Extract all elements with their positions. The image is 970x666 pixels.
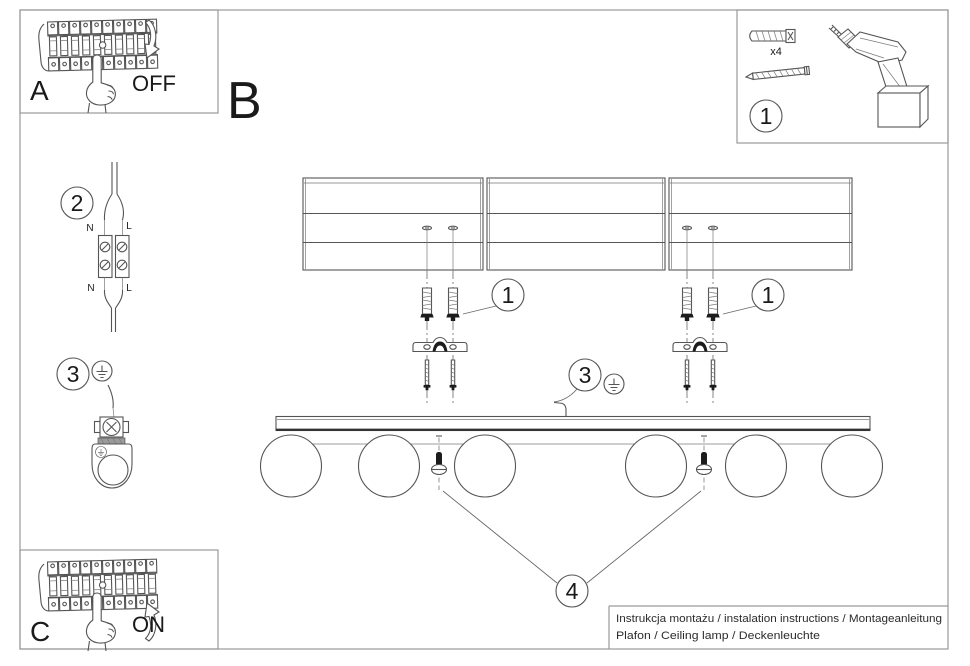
ceiling-hole <box>709 226 718 230</box>
earth-symbol-small-icon <box>96 447 107 458</box>
lamp-globe <box>626 435 687 497</box>
earth-symbol-icon <box>92 361 112 381</box>
step-c-label: C <box>30 616 50 647</box>
anchor-screw-assembly-right <box>673 230 727 404</box>
ground-bracket <box>92 438 132 488</box>
wall-plug-icon <box>750 30 795 43</box>
ceiling-panels <box>303 178 852 270</box>
label-neutral-top: N <box>86 223 93 234</box>
lamp-globe <box>455 435 516 497</box>
power-cable <box>554 403 566 417</box>
on-label: ON <box>132 612 165 637</box>
lamp-globe <box>359 435 420 497</box>
anchor-screw-assembly-left <box>413 230 467 404</box>
ground-callout: 3 <box>67 361 80 387</box>
ceiling-hole <box>423 226 432 230</box>
globe-screws-callout: 4 <box>566 578 579 604</box>
mains-wires-top <box>104 194 123 220</box>
wiring-diagram: 2 N L N L <box>61 162 132 332</box>
step-b-label: B <box>227 72 262 130</box>
earth-symbol-main-icon <box>604 374 624 394</box>
step-a-panel: A OFF <box>30 19 176 113</box>
anchor-quantity-label: x4 <box>770 46 782 58</box>
label-live-top: L <box>126 221 132 232</box>
page-frame <box>20 10 948 649</box>
lamp-globe <box>726 435 787 497</box>
ceiling-hole <box>683 226 692 230</box>
lamp-globe <box>261 435 322 497</box>
mains-cable-bottom <box>112 308 116 332</box>
screw-icon <box>746 66 810 81</box>
terminal-block <box>99 236 130 278</box>
part-1-callout: 1 <box>760 103 773 129</box>
footer-line-2: Plafon / Ceiling lamp / Deckenleuchte <box>616 630 820 642</box>
anchors-left-callout: 1 <box>502 282 515 308</box>
ground-main-callout: 3 <box>579 362 592 388</box>
mounting-diagram: 1 1 3 4 <box>261 178 883 607</box>
lamp-globe <box>822 435 883 497</box>
footer-line-1: Instrukcja montażu / instalation instruc… <box>616 613 942 625</box>
step-c-panel: C ON <box>30 559 165 651</box>
off-label: OFF <box>132 71 176 96</box>
parts-box: x4 1 <box>746 25 928 132</box>
drill-icon <box>829 25 928 127</box>
ground-wire <box>108 385 113 408</box>
instruction-drawing: A OFF B x4 1 <box>0 0 970 666</box>
ground-terminal <box>95 417 129 437</box>
label-neutral-bottom: N <box>87 283 94 294</box>
footer: Instrukcja montażu / instalation instruc… <box>616 613 942 642</box>
instruction-sheet: A OFF B x4 1 <box>0 0 970 666</box>
mains-wires-bottom <box>104 290 122 308</box>
step-a-label: A <box>30 75 49 106</box>
wiring-callout: 2 <box>71 190 84 216</box>
mains-cable-top <box>112 162 117 194</box>
label-live-bottom: L <box>126 283 132 294</box>
ceiling-hole <box>449 226 458 230</box>
ground-clamp-diagram: 3 <box>57 358 132 488</box>
anchors-right-callout: 1 <box>762 282 775 308</box>
lamp-bar <box>276 403 870 445</box>
